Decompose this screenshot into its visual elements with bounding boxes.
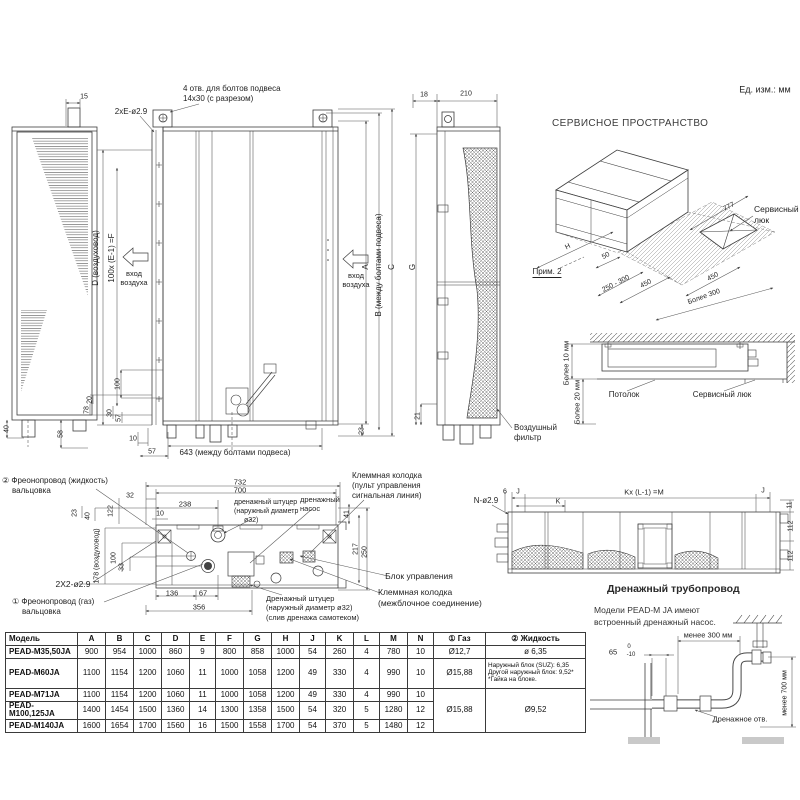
- dim-11: 11: [787, 501, 794, 508]
- liquid-note-line3: *Гайка на блоке.: [488, 677, 583, 684]
- dim-duct-d: D (воздуховод): [92, 230, 100, 285]
- dim-23: 23: [359, 427, 366, 435]
- cell: 800: [216, 646, 244, 659]
- cell: 1100: [78, 689, 106, 702]
- drain-socket-top-line2: (наружный диаметр: [234, 508, 298, 517]
- ceiling-section-view: [566, 333, 795, 424]
- bolt-hole-note: 4 отв. для болтов подвеса 14x30 (с разре…: [183, 84, 281, 104]
- bolt-hole-note-line2: 14x30 (с разрезом): [183, 94, 281, 104]
- header-e: E: [190, 633, 216, 646]
- cell: 54: [300, 646, 326, 659]
- note-2-label: Прим. 2: [532, 268, 561, 278]
- cell: 16: [190, 719, 216, 732]
- dimensions-table: Модель A B C D E F G H J K L M N ① Газ ②…: [5, 632, 586, 733]
- header-d: D: [162, 633, 190, 646]
- refrigerant-liquid-label: ② Фреонопровод (жидкость) вальцовка: [2, 476, 108, 496]
- dim-23b: 23: [72, 509, 79, 517]
- dim-356: 356: [193, 603, 206, 611]
- cell: 10: [408, 659, 434, 689]
- cell: 990: [380, 689, 408, 702]
- cell: 1200: [134, 659, 162, 689]
- dim-more-20: Более 20 мм: [573, 380, 581, 424]
- cell: 1200: [272, 689, 300, 702]
- cell: 370: [326, 719, 354, 732]
- header-b: B: [106, 633, 134, 646]
- drain-pump-line2: насос: [300, 504, 340, 513]
- drain-socket-top-line1: дренажный штуцер: [234, 499, 298, 508]
- air-inlet-label-left: вход воздуха: [118, 269, 150, 288]
- cell: 1700: [272, 719, 300, 732]
- cell: 1060: [162, 659, 190, 689]
- ceiling-hatch-label: Сервисный люк: [693, 391, 751, 399]
- header-gas: ① Газ: [434, 633, 486, 646]
- dim-g: G: [409, 264, 417, 270]
- dim-178: 178 (воздуховод): [94, 528, 101, 583]
- dim-100b: 100: [111, 552, 118, 564]
- header-n: N: [408, 633, 434, 646]
- dim-100: 100: [115, 378, 122, 390]
- technical-drawing-sheet: Ед. изм.: мм 4 отв. для болтов подвеса 1…: [0, 0, 800, 800]
- drain-socket-bottom-line2: (наружный диаметр ø32): [266, 603, 359, 612]
- dim-40b: 40: [85, 512, 92, 520]
- service-hatch-line2: люк: [754, 215, 799, 226]
- dim-40: 40: [4, 425, 11, 433]
- dim-238: 238: [179, 500, 192, 508]
- tolerance-top: 0: [627, 644, 630, 650]
- table-row-m60: PEAD-M60JA 1100 1154 1200 1060 11 1000 1…: [6, 659, 586, 689]
- service-space-title: СЕРВИСНОЕ ПРОСТРАНСТВО: [552, 118, 708, 131]
- dim-250b: 250: [362, 546, 369, 558]
- air-inlet-right-line2: воздуха: [340, 280, 372, 289]
- liquid-cell: ø 6,35: [486, 646, 586, 659]
- cell: 1360: [162, 702, 190, 720]
- header-model: Модель: [6, 633, 78, 646]
- refrigerant-gas-line2: вальцовка: [22, 607, 94, 617]
- cell: 858: [244, 646, 272, 659]
- terminal-signal-label: Клеммная колодка (пульт управления сигна…: [352, 471, 422, 501]
- table-row-m3550: PEAD-M35,50JA 900 954 1000 860 9 800 858…: [6, 646, 586, 659]
- hole-label-2xe: 2xE-ø2.9: [115, 108, 147, 116]
- drain-note-line2: встроенный дренажный насос.: [594, 616, 716, 628]
- drain-socket-bottom-line3: (слив дренажа самотеком): [266, 613, 359, 622]
- cell: 4: [354, 659, 380, 689]
- merged-liquid-cell: Ø9,52: [486, 689, 586, 733]
- cell: 1058: [244, 659, 272, 689]
- dim-less-700: менее 700 мм: [782, 670, 789, 716]
- drain-pump-line1: дренажный: [300, 495, 340, 504]
- header-j: J: [300, 633, 326, 646]
- dim-78: 78: [84, 406, 91, 414]
- dim-c: C: [388, 264, 396, 270]
- cell: 1300: [216, 702, 244, 720]
- cell: 1058: [244, 689, 272, 702]
- cell: 1000: [272, 646, 300, 659]
- drain-section-title: Дренажный трубопровод: [607, 583, 740, 596]
- top-view: [492, 492, 794, 573]
- header-l: L: [354, 633, 380, 646]
- cell: 1000: [216, 689, 244, 702]
- dim-217: 217: [353, 543, 360, 555]
- dim-136: 136: [166, 589, 179, 597]
- cell: 1358: [244, 702, 272, 720]
- service-space-view: [537, 150, 775, 320]
- header-h: H: [272, 633, 300, 646]
- dim-15: 15: [80, 94, 88, 101]
- model-name: PEAD-M71JA: [6, 689, 78, 702]
- dim-klm: Kx (L-1) =M: [624, 488, 663, 496]
- header-m: M: [380, 633, 408, 646]
- dim-122: 122: [108, 505, 115, 517]
- cell: 1480: [380, 719, 408, 732]
- cell: 320: [326, 702, 354, 720]
- refrigerant-gas-label: ① Фреонопровод (газ) вальцовка: [12, 597, 94, 617]
- bolt-hole-note-line1: 4 отв. для болтов подвеса: [183, 84, 281, 94]
- terminal-interunit-label: Клеммная колодка (межблочное соединение): [378, 587, 482, 608]
- drain-socket-bottom-label: Дренажный штуцер (наружный диаметр ø32) …: [266, 594, 359, 622]
- air-inlet-right-line1: вход: [340, 271, 372, 280]
- drain-hole-label: Дренажное отв.: [713, 715, 768, 723]
- cell: 12: [408, 719, 434, 732]
- cell: 1280: [380, 702, 408, 720]
- cell: 330: [326, 659, 354, 689]
- cell: 1154: [106, 689, 134, 702]
- cell: 4: [354, 689, 380, 702]
- cell: 260: [326, 646, 354, 659]
- dim-j-right: J: [761, 488, 765, 495]
- air-inlet-left-line2: воздуха: [118, 278, 150, 287]
- header-g: G: [244, 633, 272, 646]
- dim-33: 33: [119, 563, 126, 571]
- dim-700: 700: [234, 486, 247, 494]
- cell: 780: [380, 646, 408, 659]
- cell: 860: [162, 646, 190, 659]
- model-name: PEAD-M100,125JA: [6, 702, 78, 720]
- header-a: A: [78, 633, 106, 646]
- cell: 11: [190, 689, 216, 702]
- drain-note-line1: Модели PEAD-M JA имеют: [594, 604, 716, 616]
- cell: 1454: [106, 702, 134, 720]
- cell: 1500: [134, 702, 162, 720]
- cell: 10: [408, 689, 434, 702]
- model-name: PEAD-M140JA: [6, 719, 78, 732]
- cell: 330: [326, 689, 354, 702]
- cell: 11: [190, 659, 216, 689]
- dim-20: 20: [87, 396, 94, 404]
- cell: 1000: [216, 659, 244, 689]
- liquid-note-cell: Наружный блок (SUZ): 6,35 Другой наружны…: [486, 659, 586, 689]
- air-filter-line2: фильтр: [514, 433, 557, 443]
- cell: 1000: [134, 646, 162, 659]
- dim-67: 67: [199, 589, 207, 597]
- refrigerant-liquid-line1: ② Фреонопровод (жидкость): [2, 476, 108, 486]
- cell: 954: [106, 646, 134, 659]
- air-filter-line1: Воздушный: [514, 423, 557, 433]
- left-side-view: [7, 99, 97, 448]
- dim-41: 41: [344, 510, 351, 518]
- cell: 5: [354, 719, 380, 732]
- cell: 54: [300, 702, 326, 720]
- cell: 9: [190, 646, 216, 659]
- gas-cell: Ø15,88: [434, 659, 486, 689]
- header-c: C: [134, 633, 162, 646]
- cell: 10: [408, 646, 434, 659]
- dim-less-300: менее 300 мм: [684, 631, 733, 639]
- cell: 49: [300, 689, 326, 702]
- cell: 1560: [162, 719, 190, 732]
- terminal-signal-line3: сигнальная линия): [352, 491, 422, 501]
- cell: 12: [408, 702, 434, 720]
- cell: 1200: [134, 689, 162, 702]
- dim-6: 6: [503, 489, 507, 496]
- ceiling-label: Потолок: [609, 391, 640, 399]
- cell: 900: [78, 646, 106, 659]
- air-inlet-left-line1: вход: [118, 269, 150, 278]
- dim-57b: 57: [148, 449, 156, 456]
- drain-socket-top-line3: ø32): [244, 517, 298, 526]
- air-filter-label: Воздушный фильтр: [514, 423, 557, 443]
- header-k: K: [326, 633, 354, 646]
- cell: 1100: [78, 659, 106, 689]
- cell: 1154: [106, 659, 134, 689]
- holes-2x2-label: 2X2-ø2.9: [56, 580, 91, 589]
- model-name: PEAD-M35,50JA: [6, 646, 78, 659]
- dim-10b: 10: [156, 511, 164, 518]
- dim-112b: 112: [788, 550, 795, 561]
- right-side-view: [410, 94, 512, 444]
- refrigerant-gas-line1: ① Фреонопровод (газ): [12, 597, 94, 607]
- cell: 1558: [244, 719, 272, 732]
- dim-30: 30: [107, 409, 114, 417]
- cell: 1060: [162, 689, 190, 702]
- header-liquid: ② Жидкость: [486, 633, 586, 646]
- dim-32: 32: [126, 493, 134, 500]
- drain-socket-top-label: дренажный штуцер (наружный диаметр ø32): [234, 499, 298, 525]
- cell: 14: [190, 702, 216, 720]
- drain-pump-label: дренажный насос: [300, 495, 340, 514]
- model-name: PEAD-M60JA: [6, 659, 78, 689]
- dim-18: 18: [420, 92, 428, 99]
- dim-k: K: [556, 499, 561, 506]
- cell: 54: [300, 719, 326, 732]
- units-note: Ед. изм.: мм: [739, 86, 790, 95]
- dim-57a: 57: [116, 414, 123, 422]
- cell: 1200: [272, 659, 300, 689]
- dim-112a: 112: [788, 520, 795, 531]
- drain-section-note: Модели PEAD-M JA имеют встроенный дренаж…: [594, 604, 716, 629]
- cell: 49: [300, 659, 326, 689]
- cell: 4: [354, 646, 380, 659]
- terminal-interunit-line1: Клеммная колодка: [378, 587, 482, 598]
- service-hatch-label: Сервисный люк: [754, 204, 799, 225]
- header-f: F: [216, 633, 244, 646]
- dim-210: 210: [460, 91, 472, 98]
- cell: 1600: [78, 719, 106, 732]
- terminal-interunit-line2: (межблочное соединение): [378, 598, 482, 609]
- dim-10: 10: [129, 436, 137, 443]
- holes-n-label: N-ø2.9: [474, 497, 498, 505]
- cell: 1654: [106, 719, 134, 732]
- cell: 1500: [272, 702, 300, 720]
- table-header-row: Модель A B C D E F G H J K L M N ① Газ ②…: [6, 633, 586, 646]
- cell: 1700: [134, 719, 162, 732]
- cell: 1500: [216, 719, 244, 732]
- dim-a: A: [362, 264, 370, 269]
- service-hatch-line1: Сервисный: [754, 204, 799, 215]
- terminal-signal-line2: (пульт управления: [352, 481, 422, 491]
- air-inlet-label-right: вход воздуха: [340, 271, 372, 290]
- dim-pitch-f: 100x (E-1) =F: [108, 233, 116, 282]
- dim-58: 58: [58, 430, 65, 438]
- dim-643: 643 (между болтами подвеса): [179, 449, 290, 457]
- gas-cell: Ø12,7: [434, 646, 486, 659]
- cell: 5: [354, 702, 380, 720]
- control-box-label: Блок управления: [385, 572, 453, 581]
- dim-more-10: Более 10 мм: [562, 341, 570, 385]
- drain-socket-bottom-line1: Дренажный штуцер: [266, 594, 359, 603]
- merged-gas-cell: Ø15,88: [434, 689, 486, 733]
- cell: 1400: [78, 702, 106, 720]
- refrigerant-liquid-line2: вальцовка: [12, 486, 108, 496]
- table-row-m71: PEAD-M71JA 1100 1154 1200 1060 11 1000 1…: [6, 689, 586, 702]
- dim-j-left: J: [516, 489, 520, 496]
- tolerance-bottom: -10: [627, 652, 636, 658]
- cell: 990: [380, 659, 408, 689]
- terminal-signal-line1: Клеммная колодка: [352, 471, 422, 481]
- dim-b: B (между болтами подвеса): [375, 213, 383, 316]
- dim-21: 21: [415, 412, 422, 420]
- dim-65: 65: [609, 648, 617, 656]
